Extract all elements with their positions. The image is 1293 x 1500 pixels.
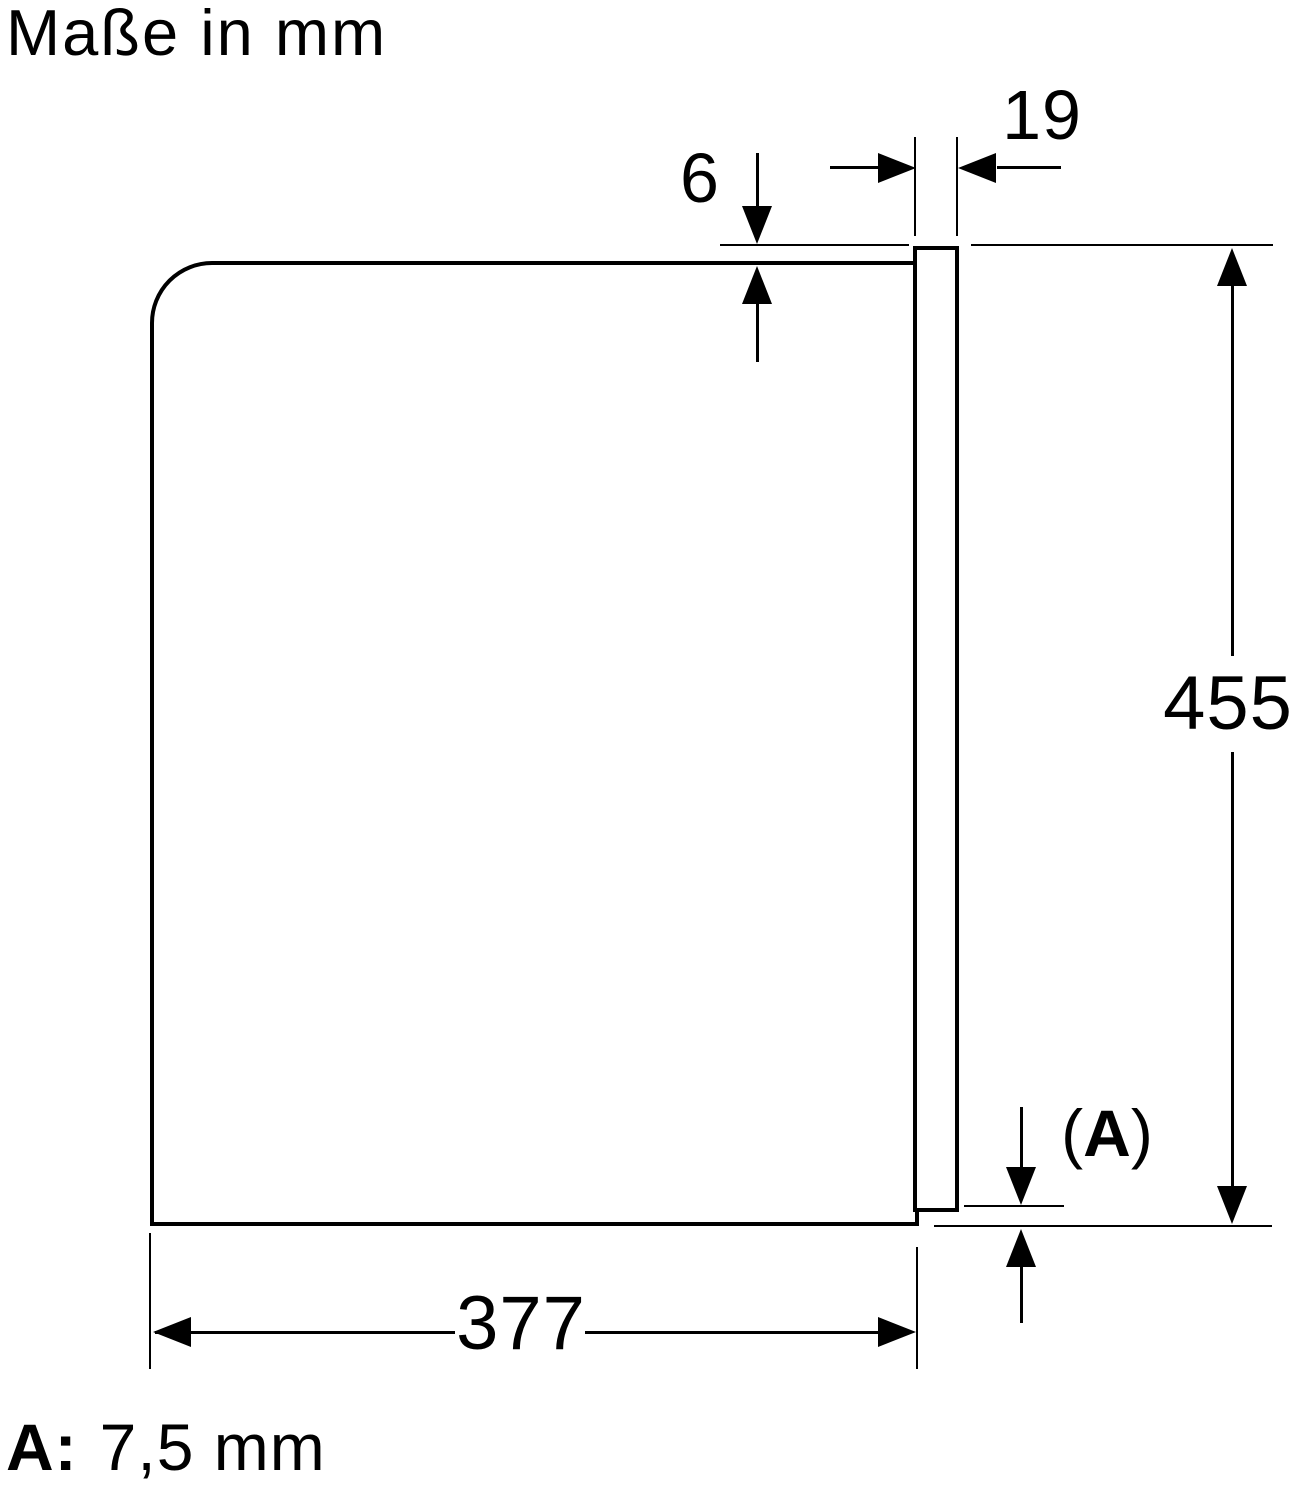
dim-455-arrowhead-down-icon	[1217, 1186, 1247, 1224]
legend-label: A:	[6, 1410, 78, 1484]
ext-line-377-left	[149, 1233, 151, 1369]
dim-455-line-bottom	[1231, 752, 1234, 1188]
legend-value: 7,5 mm	[100, 1410, 326, 1484]
dim-label-A: (A)	[1048, 1100, 1166, 1166]
dim-6-arrowhead-down-icon	[742, 206, 772, 244]
dim-label-A-letter: A	[1083, 1096, 1131, 1170]
dimension-diagram: Maße in mm 19 6 455 (A) 377 A:7,5 mm	[0, 0, 1293, 1500]
dim-377-arrowhead-right-icon	[878, 1317, 916, 1347]
ref-line-panel-bottom	[964, 1205, 1064, 1207]
dim-377-stem-right	[585, 1331, 878, 1334]
page-title: Maße in mm	[6, 0, 387, 65]
door-panel-outline	[913, 246, 959, 1212]
dim-label-455: 455	[1160, 666, 1293, 742]
dim-19-stem-right	[997, 166, 1061, 169]
ref-line-panel-top-left	[720, 244, 909, 246]
appliance-body-outline	[150, 261, 919, 1226]
dim-6-stem-top	[756, 153, 759, 208]
dim-A-stem-top	[1020, 1107, 1023, 1169]
dim-6-arrowhead-up-icon	[742, 266, 772, 304]
dim-19-stem-left	[830, 166, 878, 169]
dim-377-stem-left	[155, 1331, 455, 1334]
legend: A:7,5 mm	[6, 1414, 326, 1480]
ext-line-panel-right	[956, 137, 958, 236]
dim-label-A-paren-open: (	[1061, 1096, 1083, 1170]
dim-label-6: 6	[668, 143, 732, 213]
dim-19-arrowhead-left-icon	[958, 153, 996, 183]
dim-455-arrowhead-up-icon	[1217, 248, 1247, 286]
dim-6-stem-bottom	[756, 304, 759, 362]
dim-A-stem-bottom	[1020, 1265, 1023, 1323]
ext-line-panel-left	[914, 137, 916, 236]
dim-A-arrowhead-down-icon	[1006, 1167, 1036, 1205]
dim-A-arrowhead-up-icon	[1006, 1229, 1036, 1267]
dim-label-377: 377	[453, 1286, 589, 1362]
ref-line-body-bottom	[934, 1225, 1272, 1227]
ref-line-panel-top-right	[971, 244, 1273, 246]
dim-label-A-paren-close: )	[1131, 1096, 1153, 1170]
dim-label-19: 19	[998, 80, 1086, 150]
dim-19-arrowhead-right-icon	[878, 153, 916, 183]
dim-455-line-top	[1231, 284, 1234, 656]
ext-line-377-right	[916, 1247, 918, 1369]
